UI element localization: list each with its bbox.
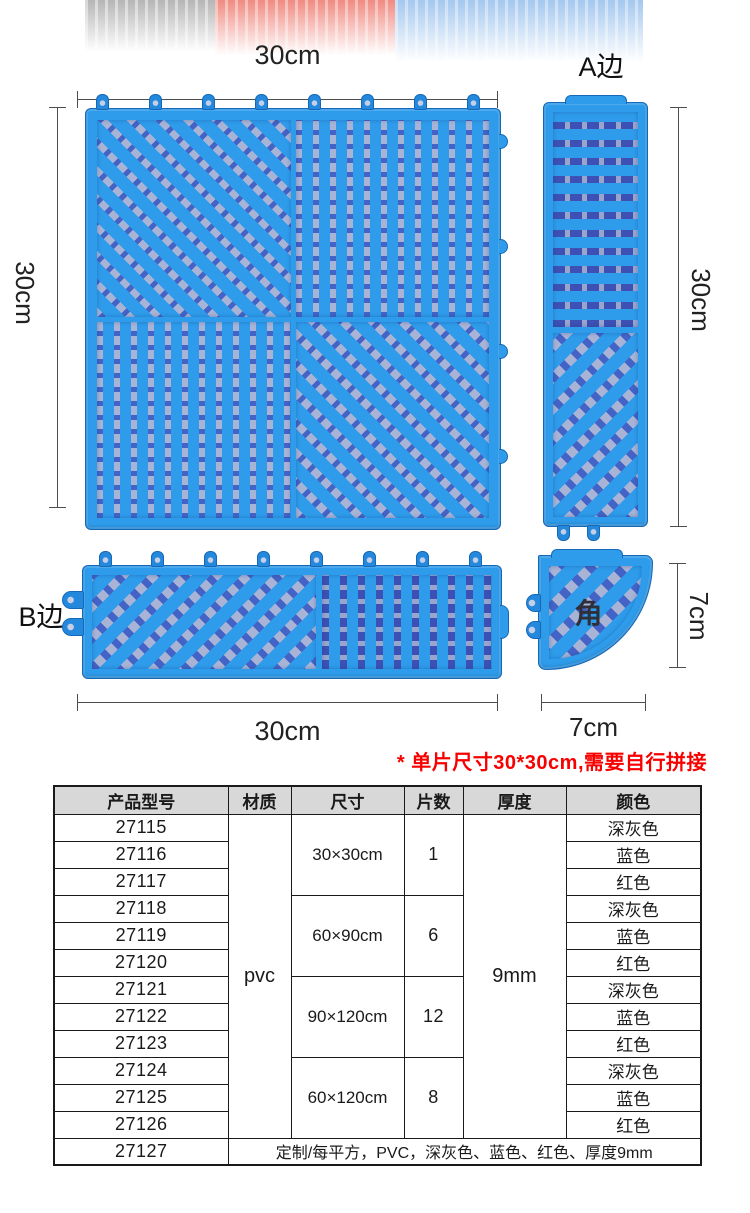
material-cell: pvc: [228, 814, 291, 1138]
model-cell: 27121: [54, 976, 228, 1003]
connector-loop: [257, 551, 270, 567]
corner-piece-image: 角: [538, 555, 653, 670]
mat-quadrant-vertical: [296, 120, 490, 317]
corner-width-dimension-line: [541, 702, 646, 703]
header-material: 材质: [228, 786, 291, 814]
table-row: 27118 60×90cm 6 深灰色: [54, 895, 701, 922]
color-cell: 红色: [566, 949, 701, 976]
main-mat-height-label: 30cm: [11, 258, 39, 328]
mat-quadrant-diagonal: [296, 322, 490, 519]
color-cell: 深灰色: [566, 976, 701, 1003]
product-spec-image: 30cm A边 30cm 30cm B边: [0, 0, 750, 1213]
connector-loop: [62, 618, 84, 636]
model-cell: 27123: [54, 1030, 228, 1057]
connector-bump: [499, 239, 508, 254]
header-model: 产品型号: [54, 786, 228, 814]
table-header-row: 产品型号 材质 尺寸 片数 厚度 颜色: [54, 786, 701, 814]
pieces-cell: 12: [404, 976, 463, 1057]
color-cell: 红色: [566, 1111, 701, 1138]
thickness-cell: 9mm: [463, 814, 566, 1138]
connector-bump: [500, 605, 509, 639]
a-strip-diagonal-pattern: [553, 333, 638, 517]
pieces-cell: 8: [404, 1057, 463, 1138]
connector-bump: [551, 549, 623, 558]
pieces-cell: 1: [404, 814, 463, 895]
connector-loop: [204, 551, 217, 567]
b-strip-slat-pattern: [322, 575, 492, 669]
main-mat-image: [85, 108, 501, 530]
connector-loop: [202, 94, 215, 110]
model-cell: 27127: [54, 1138, 228, 1165]
b-edge-strip-image: [82, 565, 502, 679]
a-edge-strip-image: [543, 102, 648, 527]
model-cell: 27126: [54, 1111, 228, 1138]
color-cell: 深灰色: [566, 1057, 701, 1084]
corner-piece-label: 角: [539, 592, 638, 632]
custom-description-cell: 定制/每平方，PVC，深灰色、蓝色、红色、厚度9mm: [228, 1138, 701, 1165]
connector-bump: [565, 95, 627, 104]
spec-table: 产品型号 材质 尺寸 片数 厚度 颜色 27115 pvc 30×30cm 1 …: [53, 785, 702, 1166]
pieces-cell: 6: [404, 895, 463, 976]
table-row: 27124 60×120cm 8 深灰色: [54, 1057, 701, 1084]
connector-loop: [416, 551, 429, 567]
size-cell: 90×120cm: [291, 976, 404, 1057]
connector-loop: [96, 94, 109, 110]
connector-loop: [361, 94, 374, 110]
color-cell: 深灰色: [566, 895, 701, 922]
header-pieces: 片数: [404, 786, 463, 814]
b-edge-width-label: 30cm: [77, 716, 498, 746]
connector-loop: [467, 94, 480, 110]
connector-bump: [499, 449, 508, 464]
color-cell: 蓝色: [566, 1003, 701, 1030]
connector-loop: [149, 94, 162, 110]
b-edge-width-dimension-line: [77, 702, 498, 703]
connector-loop: [469, 551, 482, 567]
connector-loop: [587, 525, 600, 541]
a-edge-label: A边: [556, 52, 646, 82]
mat-quadrant-vertical: [97, 322, 291, 519]
connector-loop: [414, 94, 427, 110]
table-row: 27115 pvc 30×30cm 1 9mm 深灰色: [54, 814, 701, 841]
model-cell: 27122: [54, 1003, 228, 1030]
model-cell: 27120: [54, 949, 228, 976]
header-thickness: 厚度: [463, 786, 566, 814]
b-strip-diagonal-pattern: [92, 575, 316, 669]
assembly-note: * 单片尺寸30*30cm,需要自行拼接: [397, 746, 707, 775]
model-cell: 27115: [54, 814, 228, 841]
mat-quadrant-diagonal: [97, 120, 291, 317]
main-mat-width-label: 30cm: [77, 40, 498, 70]
main-mat-height-dimension-line: [57, 107, 58, 508]
connector-loop: [99, 551, 112, 567]
connector-bump: [499, 344, 508, 359]
color-cell: 红色: [566, 1030, 701, 1057]
a-edge-height-dimension-line: [678, 107, 679, 527]
model-cell: 27125: [54, 1084, 228, 1111]
color-cell: 蓝色: [566, 922, 701, 949]
corner-width-label: 7cm: [541, 712, 646, 742]
connector-loop: [310, 551, 323, 567]
size-cell: 30×30cm: [291, 814, 404, 895]
size-cell: 60×90cm: [291, 895, 404, 976]
main-mat-width-dimension-line: [77, 99, 498, 100]
model-cell: 27116: [54, 841, 228, 868]
table-row-custom: 27127 定制/每平方，PVC，深灰色、蓝色、红色、厚度9mm: [54, 1138, 701, 1165]
connector-loop: [62, 591, 84, 609]
table-row: 27121 90×120cm 12 深灰色: [54, 976, 701, 1003]
model-cell: 27119: [54, 922, 228, 949]
a-edge-height-label: 30cm: [687, 265, 715, 335]
model-cell: 27117: [54, 868, 228, 895]
header-size: 尺寸: [291, 786, 404, 814]
model-cell: 27124: [54, 1057, 228, 1084]
size-cell: 60×120cm: [291, 1057, 404, 1138]
connector-loop: [557, 525, 570, 541]
color-cell: 蓝色: [566, 841, 701, 868]
connector-loop: [363, 551, 376, 567]
model-cell: 27118: [54, 895, 228, 922]
connector-loop: [151, 551, 164, 567]
color-cell: 红色: [566, 868, 701, 895]
color-cell: 深灰色: [566, 814, 701, 841]
corner-height-dimension-line: [677, 563, 678, 668]
connector-loop: [255, 94, 268, 110]
connector-bump: [499, 134, 508, 149]
color-cell: 蓝色: [566, 1084, 701, 1111]
header-color: 颜色: [566, 786, 701, 814]
corner-height-label: 7cm: [685, 581, 713, 651]
a-strip-slat-pattern: [553, 112, 638, 327]
connector-loop: [308, 94, 321, 110]
